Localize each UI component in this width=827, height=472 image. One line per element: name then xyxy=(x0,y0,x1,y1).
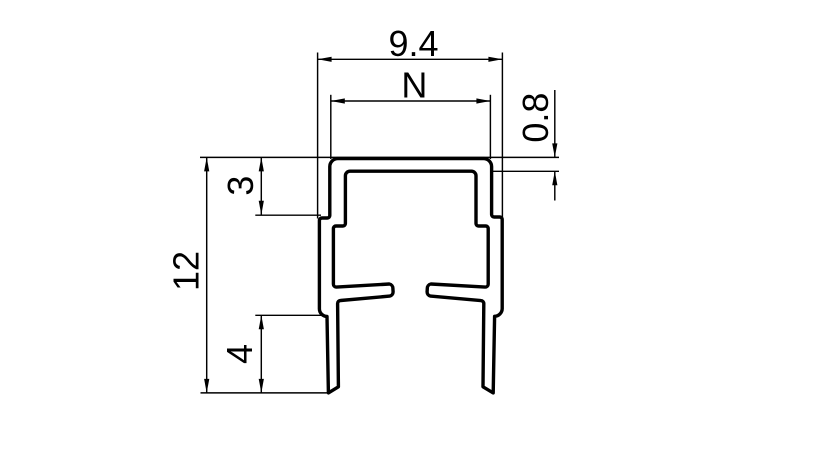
svg-text:4: 4 xyxy=(219,344,260,364)
svg-text:N: N xyxy=(401,65,427,106)
svg-text:12: 12 xyxy=(165,251,206,291)
svg-text:0.8: 0.8 xyxy=(515,93,556,143)
svg-text:3: 3 xyxy=(220,176,261,196)
svg-text:9.4: 9.4 xyxy=(388,23,438,64)
